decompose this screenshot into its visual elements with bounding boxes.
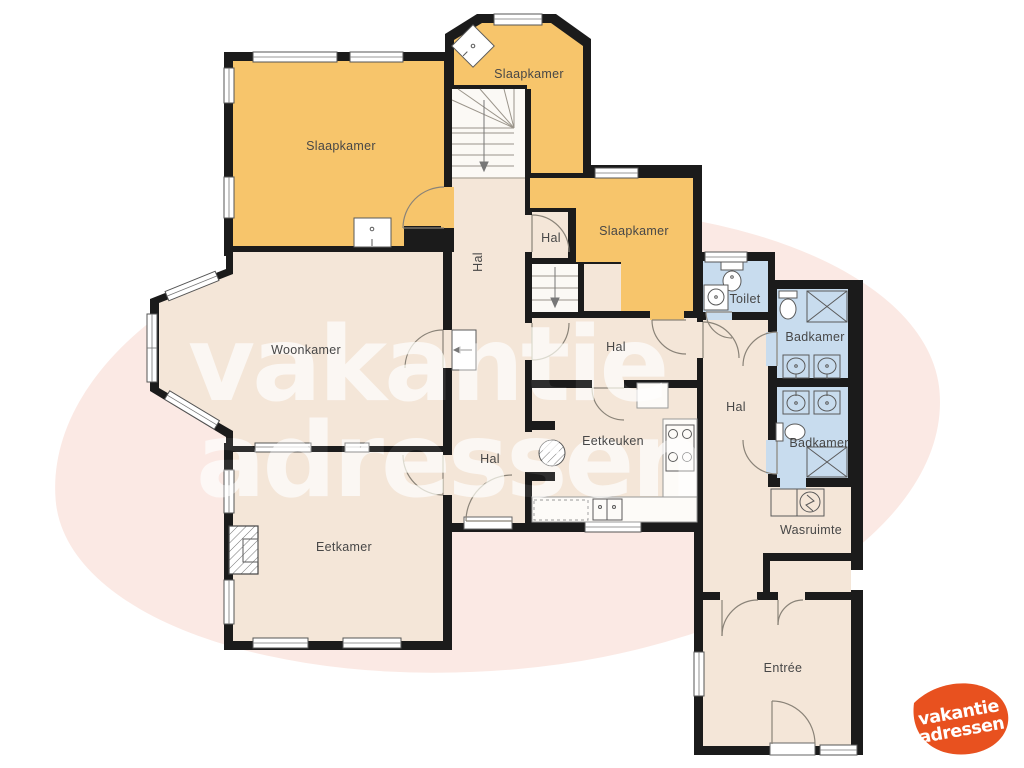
label-hal-middle: Hal: [606, 340, 626, 354]
label-eetkeuken: Eetkeuken: [582, 434, 644, 448]
label-hal-right: Hal: [726, 400, 746, 414]
room-labels: Slaapkamer Slaapkamer Slaapkamer Hal Hal…: [0, 0, 1024, 768]
label-woonkamer: Woonkamer: [271, 343, 341, 357]
label-badkamer-2: Badkamer: [789, 436, 848, 450]
label-slaapkamer-2: Slaapkamer: [494, 67, 564, 81]
label-toilet: Toilet: [730, 292, 761, 306]
label-badkamer-1: Badkamer: [785, 330, 844, 344]
label-slaapkamer-3: Slaapkamer: [599, 224, 669, 238]
label-entree: Entrée: [764, 661, 803, 675]
label-slaapkamer-1: Slaapkamer: [306, 139, 376, 153]
label-hal-landing: Hal: [541, 231, 561, 245]
label-hal-stairs: Hal: [471, 252, 485, 272]
vakantieadressen-logo: vakantie adressen: [893, 676, 1024, 764]
label-hal-lower: Hal: [480, 452, 500, 466]
label-eetkamer: Eetkamer: [316, 540, 372, 554]
floorplan-page: vakantie adressen Slaapkamer Slaapkamer …: [0, 0, 1024, 768]
label-wasruimte: Wasruimte: [780, 523, 842, 537]
